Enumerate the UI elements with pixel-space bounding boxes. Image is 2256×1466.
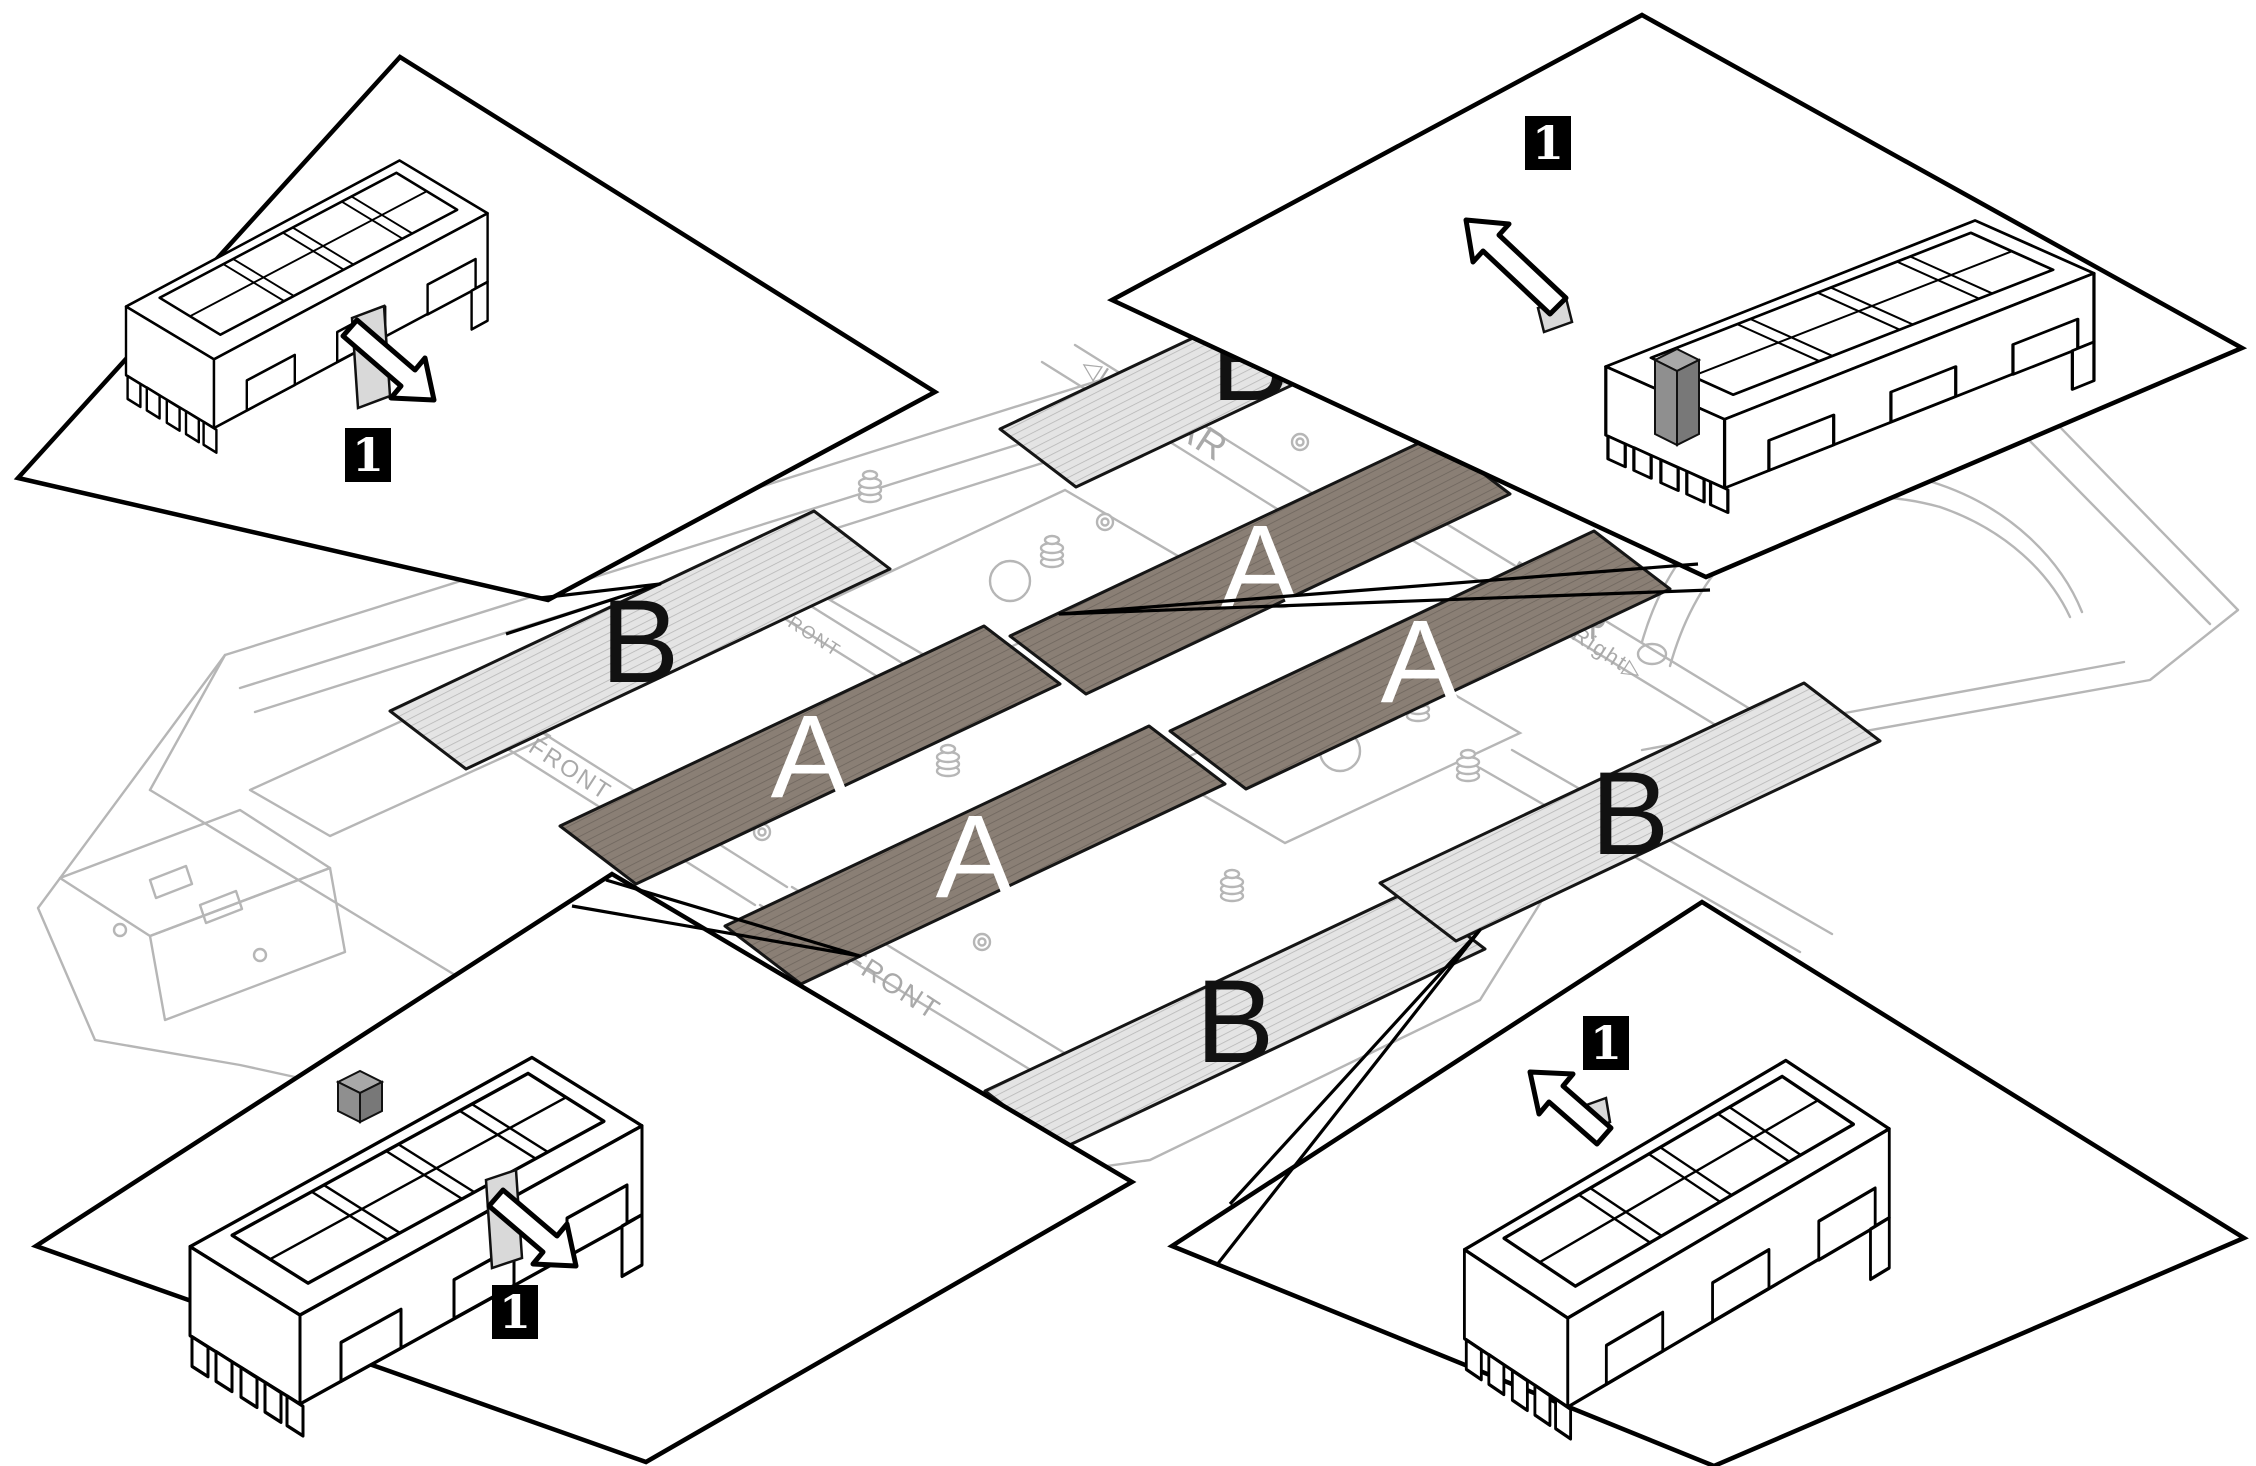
- tool-block-bottom-left: [338, 1071, 382, 1122]
- spring-standoff: [1041, 536, 1063, 567]
- water-tube: [1940, 507, 2070, 617]
- block-front-face: [1655, 360, 1677, 445]
- dimm-strip-label-b: B: [1196, 956, 1275, 1088]
- water-tube: [1932, 482, 2082, 612]
- dimm-strip-label-b: B: [601, 576, 680, 708]
- spring-standoff: [1221, 870, 1243, 901]
- dimm-strip-label-a: A: [1381, 596, 1460, 728]
- dimm-strip-label-a: A: [1221, 501, 1300, 633]
- callout-number: 1: [499, 1285, 531, 1339]
- spring-standoff: [937, 745, 959, 776]
- dimm-strip-label-b: B: [1591, 748, 1670, 880]
- dimm-strip-label-a: A: [771, 691, 850, 823]
- callout-1-top-right: 1: [1525, 116, 1571, 170]
- spring-standoff: [859, 471, 881, 502]
- block-side-face: [1677, 360, 1699, 445]
- cage-hole: [254, 949, 266, 961]
- cage-port: [150, 866, 192, 898]
- front-left-line: [150, 790, 455, 975]
- callout-number: 1: [352, 428, 384, 482]
- callout-number: 1: [1532, 116, 1564, 170]
- dimm-tool-service-diagram: ◁Left REAR REAR Right▷ FRONT FRONT FRONT…: [0, 0, 2256, 1466]
- spring-standoff: [1457, 750, 1479, 781]
- dimm-strip-label-a: A: [936, 791, 1015, 923]
- screw: [1292, 434, 1308, 450]
- callout-number: 1: [1590, 1016, 1622, 1070]
- callout-1-bottom-left: 1: [492, 1285, 538, 1339]
- screw: [1097, 514, 1113, 530]
- callout-1-bottom-right: 1: [1583, 1016, 1629, 1070]
- screw: [974, 934, 990, 950]
- cage-port: [200, 891, 242, 923]
- cage-hole: [114, 924, 126, 936]
- tool-block-top-right: [1655, 349, 1699, 445]
- front-cage: [60, 810, 330, 936]
- callout-1-top-left: 1: [345, 428, 391, 482]
- left-end-line: [150, 655, 225, 790]
